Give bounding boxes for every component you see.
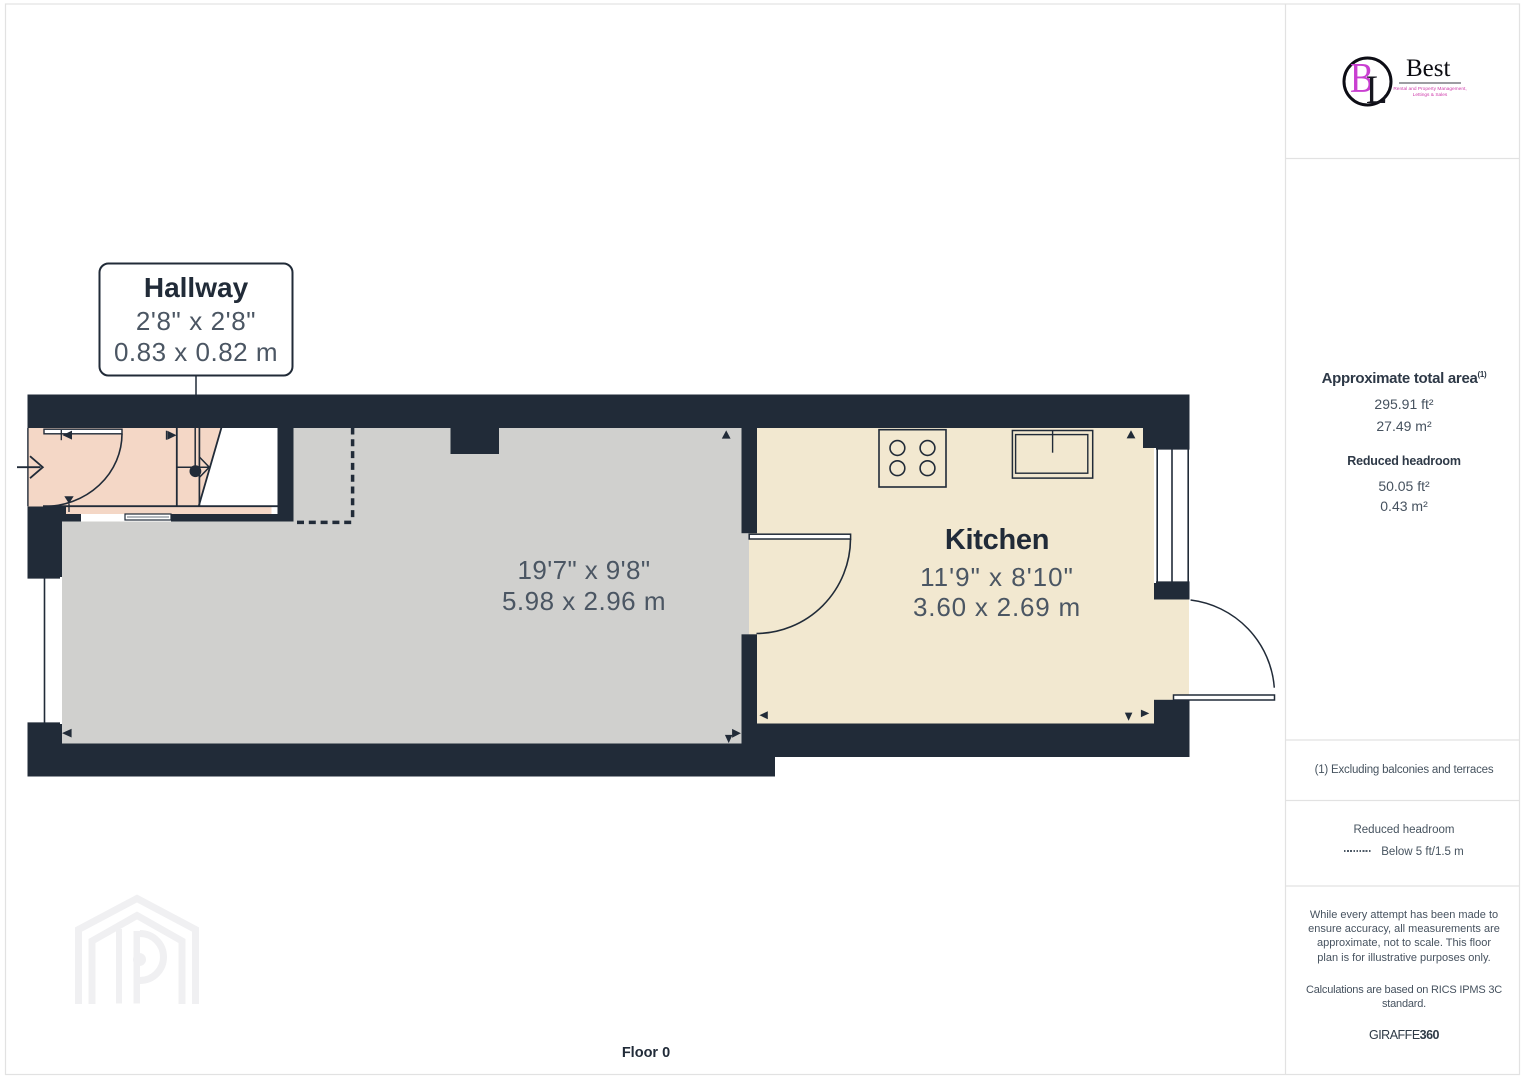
svg-text:Lettings & Sales: Lettings & Sales xyxy=(1413,92,1448,98)
svg-text:Rental and Property Management: Rental and Property Management, xyxy=(1393,86,1466,92)
